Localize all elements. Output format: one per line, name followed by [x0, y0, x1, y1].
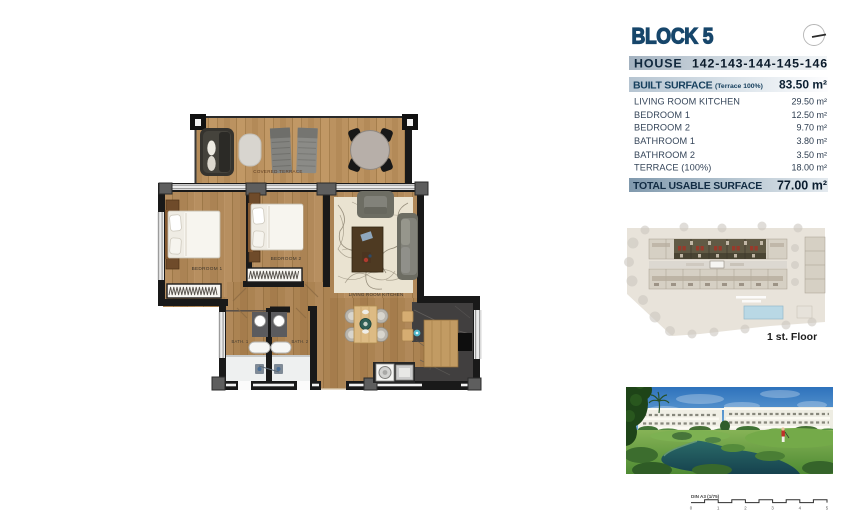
svg-text:COVERED TERRACE: COVERED TERRACE: [253, 169, 302, 174]
svg-text:LIVING ROOM KITCHEN: LIVING ROOM KITCHEN: [634, 97, 740, 107]
svg-text:3.50 m²: 3.50 m²: [796, 150, 827, 160]
svg-text:BEDROOM 1: BEDROOM 1: [634, 110, 690, 120]
svg-text:18.00 m²: 18.00 m²: [791, 163, 827, 173]
svg-text:1 st. Floor: 1 st. Floor: [767, 331, 817, 343]
svg-text:DIN A3 (1/75): DIN A3 (1/75): [691, 494, 720, 499]
svg-text:83.50 m²: 83.50 m²: [779, 78, 827, 92]
svg-text:BLOCK 5: BLOCK 5: [632, 24, 714, 49]
svg-text:TOTAL USABLE SURFACE: TOTAL USABLE SURFACE: [633, 180, 762, 192]
svg-text:9.70 m²: 9.70 m²: [796, 123, 827, 133]
svg-text:BEDROOM 2: BEDROOM 2: [634, 123, 690, 133]
svg-text:BATHROOM 2: BATHROOM 2: [634, 150, 695, 160]
svg-text:77.00 m²: 77.00 m²: [777, 179, 827, 193]
svg-text:0: 0: [690, 506, 693, 511]
svg-text:(Terrace 100%): (Terrace 100%): [715, 83, 763, 90]
svg-text:LIVING ROOM KITCHEN: LIVING ROOM KITCHEN: [349, 292, 404, 297]
svg-text:2: 2: [744, 506, 747, 511]
svg-text:BEDROOM 1: BEDROOM 1: [192, 266, 223, 271]
svg-text:142-143-144-145-146: 142-143-144-145-146: [692, 57, 828, 71]
svg-text:1: 1: [717, 506, 720, 511]
svg-text:BEDROOM 2: BEDROOM 2: [271, 256, 302, 261]
svg-text:3: 3: [771, 506, 774, 511]
svg-text:HOUSE: HOUSE: [634, 57, 683, 71]
svg-text:BATH. 1: BATH. 1: [232, 339, 249, 344]
svg-text:5: 5: [826, 506, 829, 511]
svg-text:BATH. 2: BATH. 2: [292, 339, 309, 344]
svg-text:29.50 m²: 29.50 m²: [791, 97, 827, 107]
svg-text:12.50 m²: 12.50 m²: [791, 110, 827, 120]
svg-text:3.80 m²: 3.80 m²: [796, 136, 827, 146]
svg-text:TERRACE (100%): TERRACE (100%): [634, 163, 711, 173]
svg-text:4: 4: [799, 506, 802, 511]
svg-text:BUILT SURFACE: BUILT SURFACE: [633, 80, 713, 92]
svg-text:BATHROOM 1: BATHROOM 1: [634, 136, 695, 146]
